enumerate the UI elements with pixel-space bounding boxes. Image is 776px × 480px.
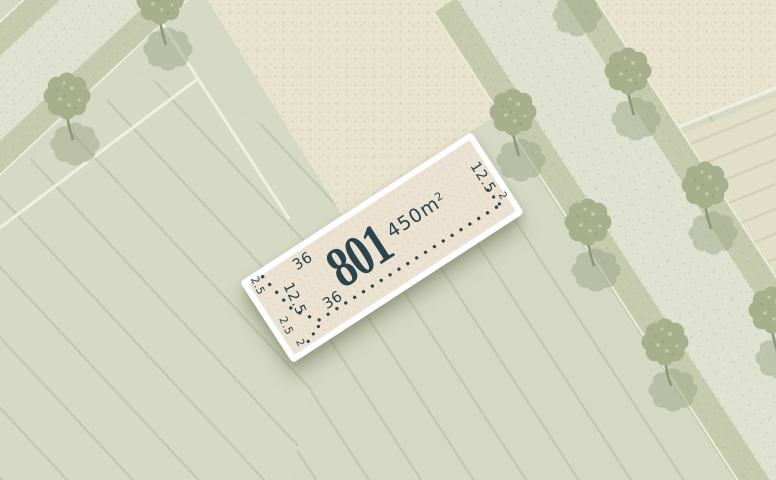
tree-icon (732, 280, 776, 390)
tree-icon (27, 66, 117, 176)
tree-shadow (529, 0, 619, 47)
masterplan-map: 801 450m2 36 36 12.5 2 2.5 12.5 2.5 2 (0, 0, 776, 480)
tree-icon (625, 312, 715, 422)
tree-icon (665, 155, 755, 265)
tree-icon (120, 0, 210, 81)
tree-icon (548, 192, 638, 302)
tree-icon (588, 41, 678, 151)
